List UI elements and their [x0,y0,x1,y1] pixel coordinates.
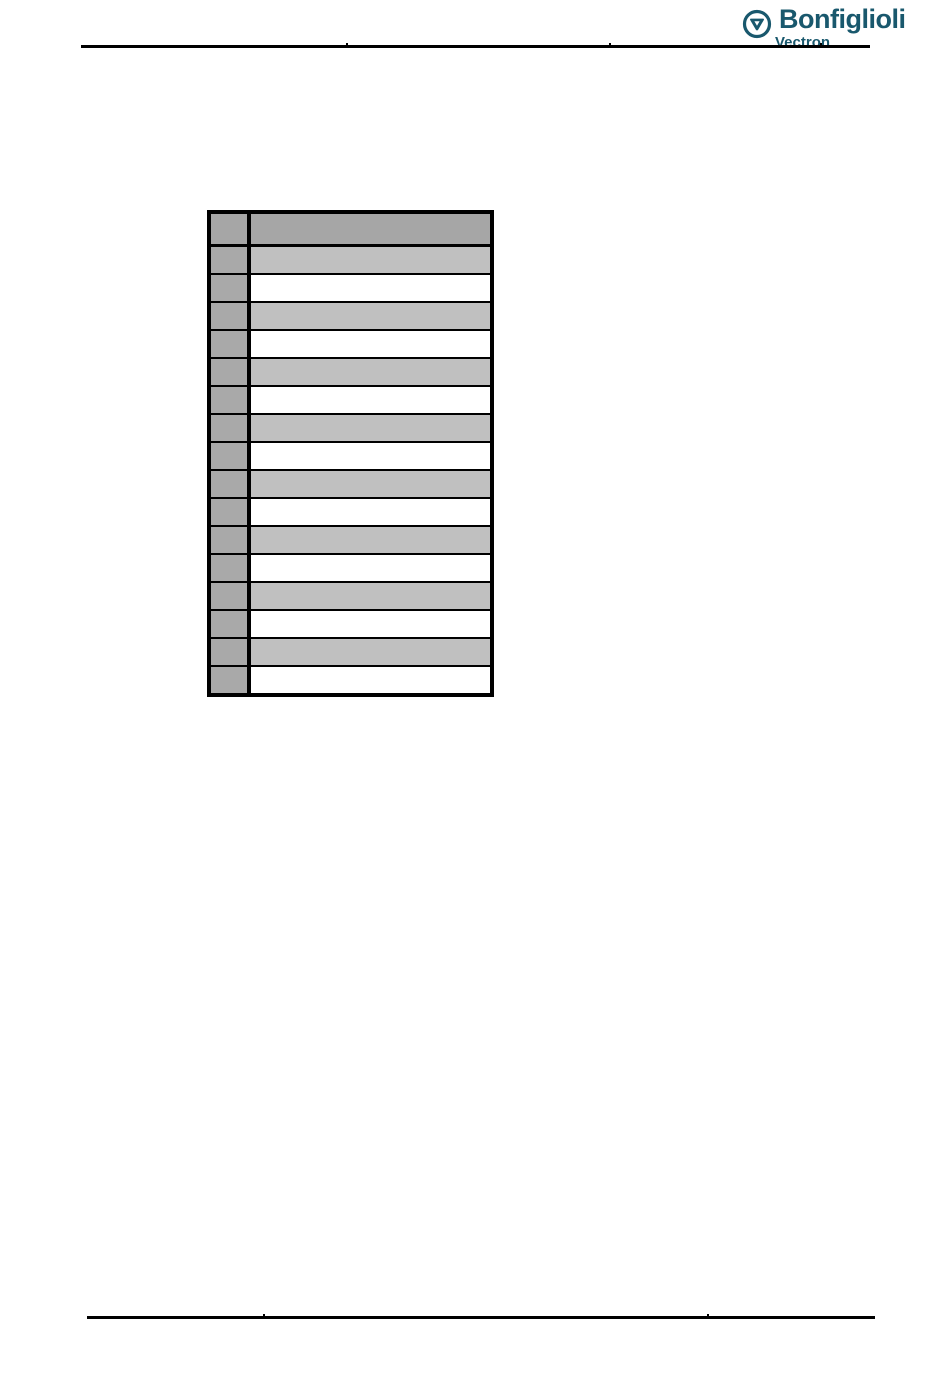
row-header-cell [211,443,251,469]
row-value-cell [251,583,490,609]
bonfiglioli-vectron-logo: Bonfiglioli Vectron [742,6,905,50]
table-row [211,247,490,273]
row-header-cell [211,527,251,553]
table-row [211,609,490,637]
row-header-cell [211,499,251,525]
row-header-cell [211,331,251,357]
row-header-cell [211,471,251,497]
table-row [211,665,490,693]
table-row [211,357,490,385]
table-row [211,525,490,553]
row-value-cell [251,611,490,637]
footer-rule [87,1316,875,1319]
row-header-cell [211,359,251,385]
table-row [211,441,490,469]
row-value-cell [251,667,490,693]
table-row [211,413,490,441]
table-header-cell [211,214,251,244]
row-value-cell [251,527,490,553]
table-row [211,301,490,329]
row-header-cell [211,415,251,441]
footer-rule-tick [263,1314,265,1316]
row-header-cell [211,247,251,273]
logo-brand-text: Bonfiglioli [779,6,905,33]
header-rule-tick [820,43,822,45]
footer-rule-tick [707,1314,709,1316]
row-header-cell [211,611,251,637]
row-value-cell [251,443,490,469]
row-header-cell [211,275,251,301]
row-header-cell [211,639,251,665]
row-value-cell [251,359,490,385]
bonfiglioli-logo-icon [742,9,772,39]
row-header-cell [211,583,251,609]
row-value-cell [251,499,490,525]
row-value-cell [251,387,490,413]
table-row [211,497,490,525]
row-value-cell [251,275,490,301]
row-value-cell [251,639,490,665]
table-row [211,385,490,413]
main-table-body [211,247,490,693]
row-value-cell [251,415,490,441]
row-header-cell [211,555,251,581]
table-header-row [211,214,490,247]
table-header-cell [251,214,490,244]
table-row [211,581,490,609]
row-header-cell [211,303,251,329]
table-row [211,637,490,665]
row-header-cell [211,387,251,413]
table-row [211,469,490,497]
row-value-cell [251,471,490,497]
header-rule [81,45,870,48]
row-value-cell [251,303,490,329]
header-rule-tick [609,43,611,45]
document-page: Bonfiglioli Vectron [0,0,950,1379]
row-value-cell [251,247,490,273]
main-table [207,210,494,697]
row-value-cell [251,331,490,357]
row-value-cell [251,555,490,581]
table-row [211,553,490,581]
table-row [211,329,490,357]
header-rule-tick [346,43,348,45]
row-header-cell [211,667,251,693]
logo-text: Bonfiglioli Vectron [779,6,905,50]
table-row [211,273,490,301]
